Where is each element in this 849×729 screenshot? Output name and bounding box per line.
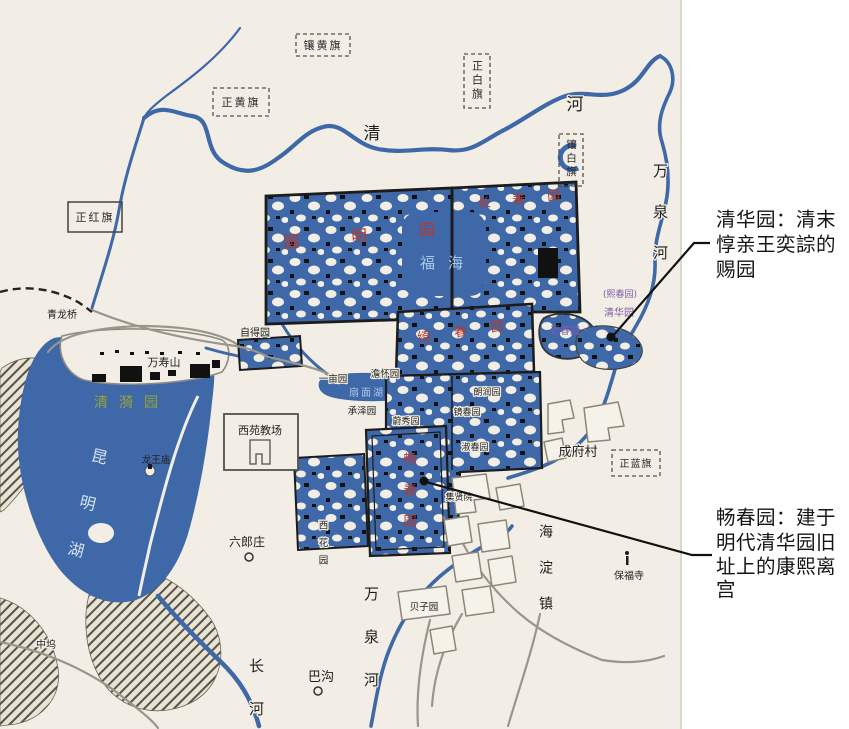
label-qinglongqiao: 青龙桥 bbox=[47, 308, 77, 321]
map-canvas: 镶黄旗 正白旗 正黄旗 镶白旗 正红旗 正蓝旗 清 河 万泉河 万泉河 长河 青… bbox=[0, 0, 849, 729]
label-he-river: 河 bbox=[567, 95, 584, 115]
label-jinchunyuan: 近春园 bbox=[550, 324, 580, 337]
annotation-changchun-line4: 宫 bbox=[716, 578, 736, 601]
label-zhenglanqi: 正蓝旗 bbox=[620, 457, 653, 470]
label-jingchunyuan: 镜春园 bbox=[453, 406, 480, 418]
historical-garden-map: 镶黄旗 正白旗 正黄旗 镶白旗 正红旗 正蓝旗 清 河 万泉河 万泉河 长河 青… bbox=[0, 0, 849, 729]
liulangzhuang-marker bbox=[245, 553, 253, 561]
label-zhenghongqi: 正红旗 bbox=[76, 210, 115, 224]
label-langrunyuan: 朗润园 bbox=[473, 386, 500, 398]
label-zhongwu: 中坞 bbox=[36, 638, 56, 651]
annotation-qinghua-line3: 赐园 bbox=[716, 258, 756, 281]
label-yimuyuan: 一亩园 bbox=[319, 373, 348, 385]
label-wanquan-bottom: 万泉河 bbox=[362, 586, 380, 715]
annotation-changchun-line2: 明代清华园旧 bbox=[716, 531, 836, 554]
label-bagou: 巴沟 bbox=[308, 670, 334, 685]
qichunyuan-area bbox=[396, 304, 534, 376]
label-wanshoushan: 万寿山 bbox=[148, 355, 181, 369]
bagou-marker bbox=[314, 687, 322, 695]
label-qing-river: 清 bbox=[364, 124, 381, 144]
label-baofusi: 保福寺 bbox=[614, 569, 644, 582]
label-shanmianhu: 扇面湖 bbox=[349, 386, 385, 399]
label-xichunyuan: (熙春园) bbox=[603, 288, 637, 300]
label-changchunyuan-kangxi: 畅春园 bbox=[401, 452, 417, 545]
label-chengzeyuan: 承泽园 bbox=[348, 406, 377, 417]
zideyuan-area bbox=[238, 336, 302, 370]
annotation-qinghua-line2: 惇亲王奕誴的 bbox=[716, 233, 836, 256]
lake-island-south bbox=[88, 523, 114, 543]
label-changhe: 长河 bbox=[247, 658, 265, 729]
label-beiziyuan: 贝子园 bbox=[410, 602, 439, 613]
annotation-qinghua-line1: 清华园：清末 bbox=[716, 208, 836, 231]
label-xiyuanjiaochang: 西苑教场 bbox=[238, 423, 282, 437]
annotation-changchun-line3: 址上的康熙离 bbox=[716, 555, 836, 578]
label-fuhai: 福海 bbox=[420, 254, 476, 272]
label-danhuaiyuan: 澹怀园 bbox=[371, 368, 400, 380]
changchunyuan-building bbox=[538, 248, 558, 278]
label-shuchunyuan: 淑春园 bbox=[461, 441, 488, 453]
label-xiangbaiqi: 镶白旗 bbox=[565, 138, 577, 179]
label-weixiuyuan: 蔚秀园 bbox=[392, 415, 419, 427]
label-qingyiyuan: 清漪园 bbox=[94, 395, 169, 411]
label-wanquan-right: 万泉河 bbox=[651, 163, 669, 286]
leader-changchun-dot bbox=[420, 477, 429, 486]
label-xianghuangqi: 镶黄旗 bbox=[304, 38, 343, 52]
label-chengfucun: 成府村 bbox=[558, 445, 597, 460]
label-longwangmiao: 龙王庙 bbox=[142, 454, 171, 466]
annotation-changchun-line1: 畅春园：建于 bbox=[716, 506, 836, 529]
xiyuan-parade-ground bbox=[224, 414, 298, 470]
map-paper-edge bbox=[680, 0, 682, 729]
label-zhengbaiqi: 正白旗 bbox=[471, 60, 484, 102]
leader-qinghua-dot bbox=[607, 333, 616, 342]
label-zhenghuangqi: 正黄旗 bbox=[222, 95, 261, 109]
xihuayuan-area bbox=[294, 454, 368, 550]
label-xihuayuan: 西花园 bbox=[317, 520, 329, 573]
label-haidianzhen: 海淀镇 bbox=[537, 524, 553, 632]
label-zideyuan: 自得园 bbox=[240, 326, 270, 339]
label-liulangzhuang: 六郎庄 bbox=[229, 534, 265, 549]
